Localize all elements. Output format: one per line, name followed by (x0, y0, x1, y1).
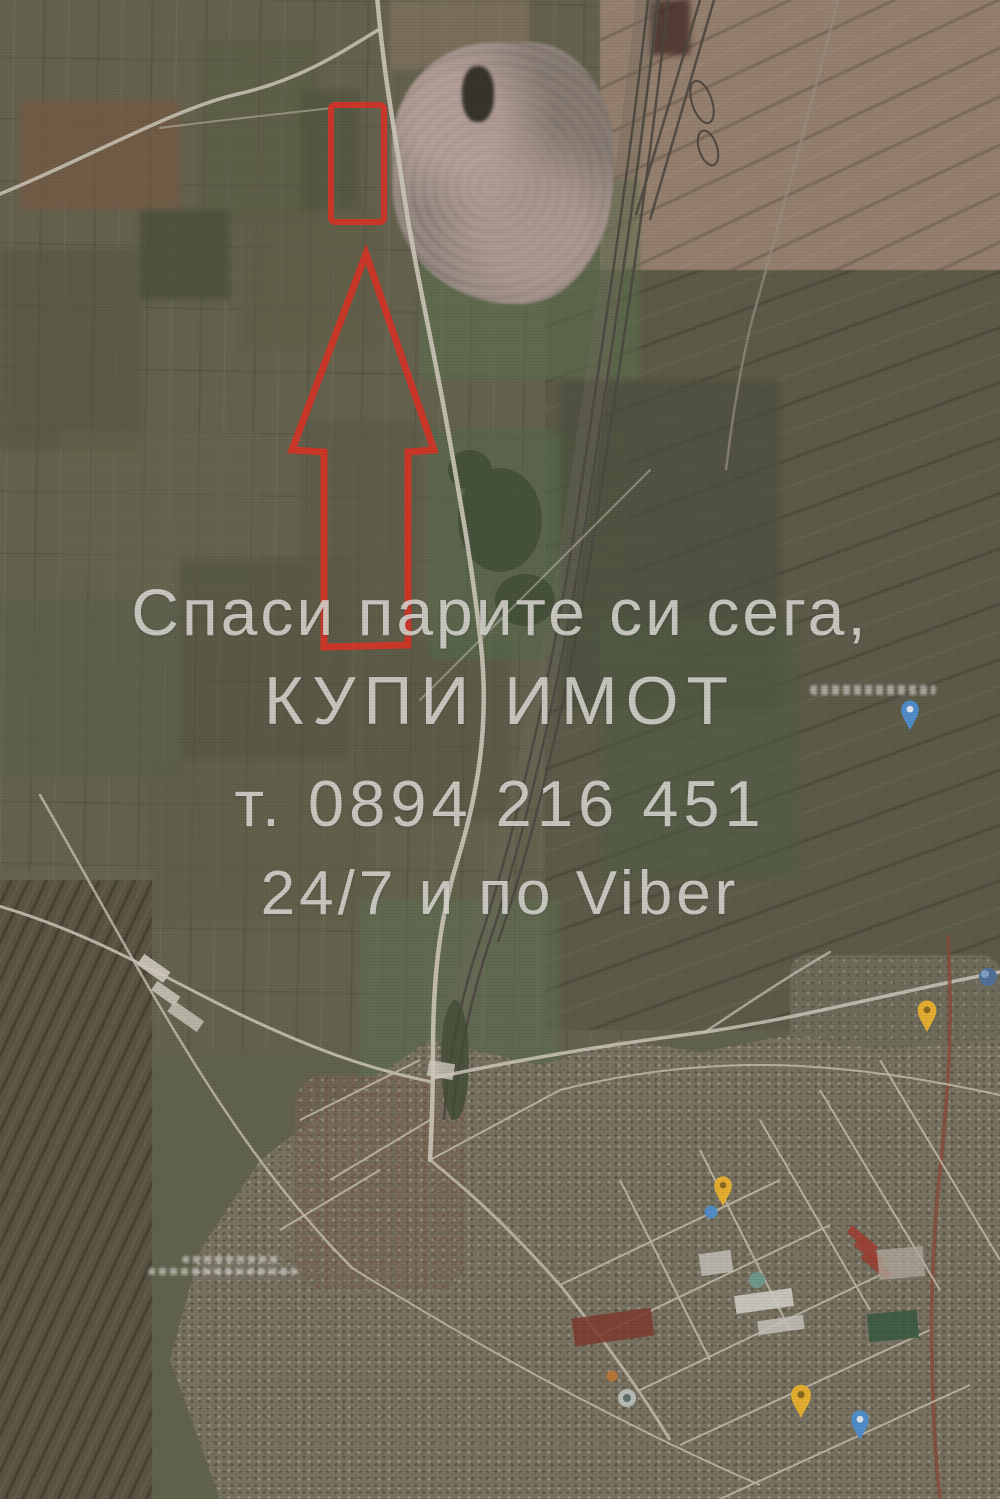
annotation-arrow-layer (0, 0, 1000, 1499)
watermark-viber: 24/7 и по Viber (0, 858, 1000, 929)
satellite-map-image: Спаси парите си сега, КУПИ ИМОТ т. 0894 … (0, 0, 1000, 1499)
watermark-line-2: КУПИ ИМОТ (0, 662, 1000, 740)
watermark-line-1: Спаси парите си сега, (0, 574, 1000, 650)
watermark-phone: т. 0894 216 451 (0, 766, 1000, 841)
